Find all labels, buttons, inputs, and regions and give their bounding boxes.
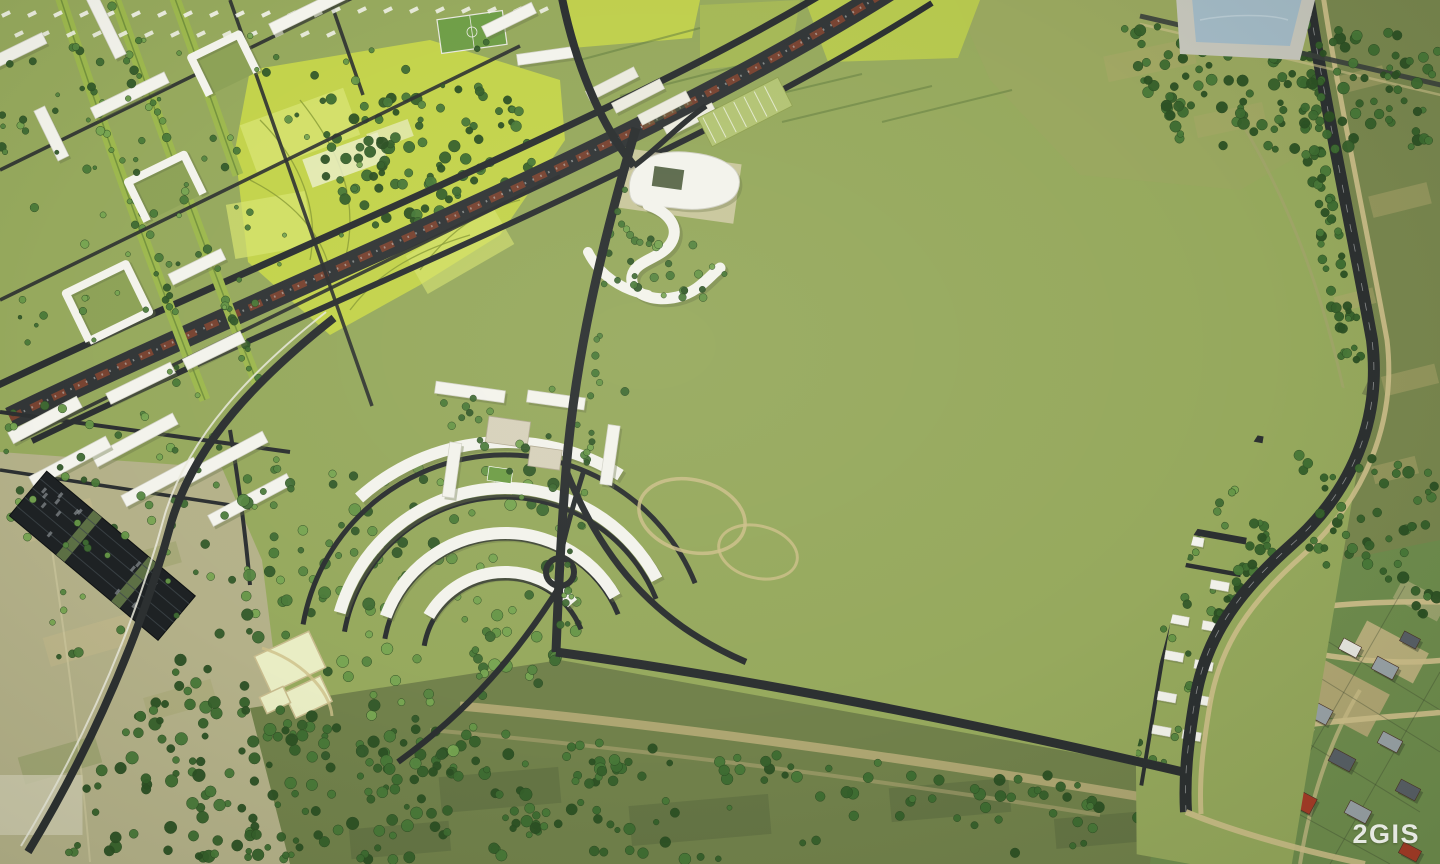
pond — [1176, 0, 1316, 60]
masterplan-aerial-render: 2GIS — [0, 0, 1440, 864]
watermark-2gis-logo: 2GIS — [1352, 819, 1420, 850]
render-canvas — [0, 0, 1440, 864]
